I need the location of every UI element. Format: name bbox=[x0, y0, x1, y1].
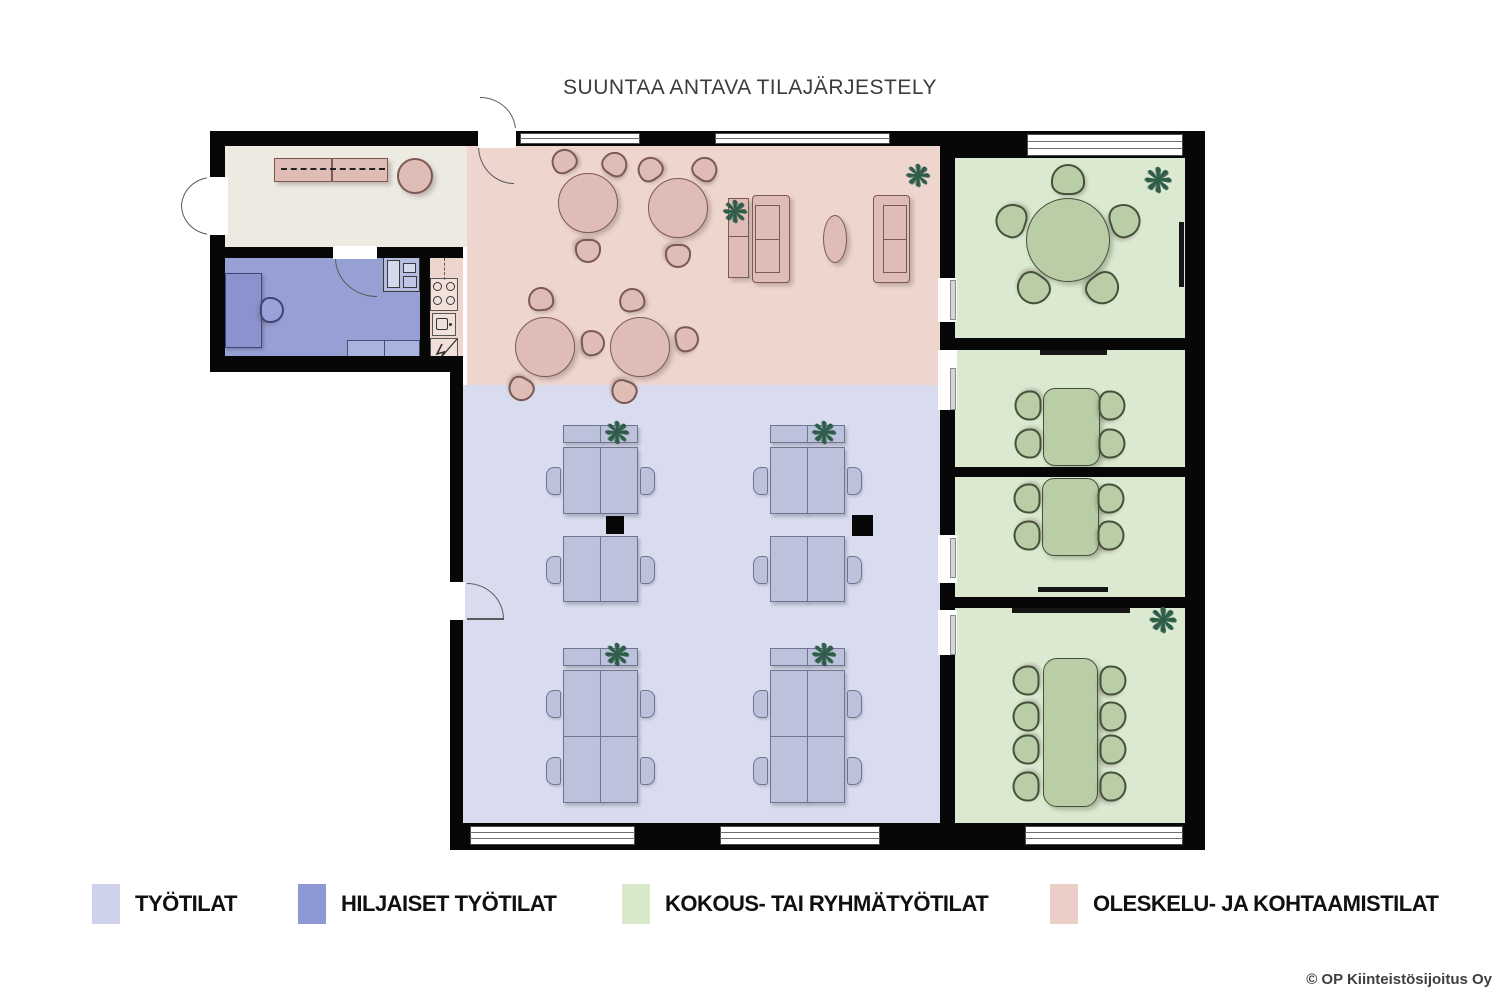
legend-label: OLESKELU- JA KOHTAAMISTILAT bbox=[1093, 891, 1438, 917]
desk bbox=[563, 736, 601, 803]
desk bbox=[563, 447, 601, 514]
meeting-table bbox=[1042, 478, 1099, 556]
office-chair bbox=[640, 690, 655, 718]
plant-icon: ❋ bbox=[1149, 604, 1178, 638]
legend-label: HILJAISET TYÖTILAT bbox=[341, 891, 556, 917]
door-leaf bbox=[950, 280, 956, 320]
desk bbox=[770, 536, 808, 602]
copier-panel bbox=[403, 276, 417, 288]
desk bbox=[770, 447, 808, 514]
wall bbox=[420, 247, 430, 372]
plant-icon: ❋ bbox=[811, 419, 836, 449]
door-arc-outside bbox=[480, 97, 516, 131]
office-chair bbox=[640, 757, 655, 785]
floor-plan-canvas: SUUNTAA ANTAVA TILAJÄRJESTELY bbox=[0, 0, 1500, 1000]
counter-dashed-line bbox=[444, 258, 445, 280]
office-chair bbox=[847, 690, 862, 718]
desk bbox=[563, 670, 601, 737]
shelf bbox=[770, 648, 808, 666]
wall bbox=[955, 338, 1185, 350]
sink-basin bbox=[436, 318, 448, 330]
cafe-table bbox=[610, 317, 670, 377]
meeting-chair bbox=[1013, 735, 1040, 765]
legend-swatch bbox=[92, 884, 120, 924]
stove-burner bbox=[433, 282, 442, 291]
legend-label: TYÖTILAT bbox=[135, 891, 237, 917]
desk bbox=[770, 736, 808, 803]
door-leaf bbox=[950, 368, 956, 410]
column bbox=[852, 515, 873, 536]
cafe-table bbox=[558, 173, 618, 233]
sofa-cushion-line bbox=[728, 236, 749, 237]
window bbox=[470, 826, 635, 845]
desk bbox=[600, 536, 638, 602]
wall bbox=[210, 131, 225, 372]
office-chair bbox=[753, 556, 768, 584]
desk bbox=[807, 670, 845, 737]
column bbox=[606, 516, 624, 534]
legend-swatch bbox=[298, 884, 326, 924]
wall bbox=[940, 146, 955, 823]
door-opening bbox=[333, 246, 377, 259]
office-chair bbox=[753, 757, 768, 785]
bench-dashed-line bbox=[281, 168, 385, 170]
meeting-chair bbox=[1013, 772, 1040, 802]
window bbox=[520, 133, 640, 144]
legend-item-hiljaiset: HILJAISET TYÖTILAT bbox=[298, 884, 556, 924]
office-chair bbox=[640, 467, 655, 495]
desk bbox=[807, 447, 845, 514]
legend-swatch bbox=[1050, 884, 1078, 924]
cafe-table bbox=[515, 317, 575, 377]
meeting-chair bbox=[1051, 164, 1085, 195]
office-chair bbox=[753, 467, 768, 495]
conference-table bbox=[1043, 658, 1098, 807]
door-bar bbox=[1012, 608, 1130, 613]
wall-board bbox=[1179, 222, 1184, 287]
plant-icon: ❋ bbox=[604, 641, 629, 671]
meeting-table-round bbox=[1026, 198, 1110, 282]
window-pane-line bbox=[1027, 141, 1183, 142]
desk bbox=[600, 447, 638, 514]
window-pane-line bbox=[1027, 148, 1183, 149]
meeting-chair bbox=[1014, 521, 1041, 551]
desk bbox=[770, 670, 808, 737]
copyright-text: © OP Kiinteistösijoitus Oy bbox=[1306, 971, 1492, 988]
wall bbox=[1185, 131, 1205, 850]
plant-icon: ❋ bbox=[722, 198, 747, 228]
door-opening bbox=[478, 128, 516, 148]
sofa-cushion-line bbox=[883, 239, 907, 240]
shelf bbox=[770, 425, 808, 443]
meeting-chair bbox=[1015, 391, 1042, 421]
office-chair bbox=[546, 467, 561, 495]
door-opening bbox=[448, 582, 465, 620]
window-pane-line bbox=[1025, 838, 1183, 839]
door-leaf-line bbox=[467, 618, 504, 620]
entrance-opening bbox=[207, 177, 228, 235]
coffee-table bbox=[823, 215, 847, 263]
door-leaf bbox=[950, 615, 956, 655]
stove-burner bbox=[446, 296, 455, 305]
page-title: SUUNTAA ANTAVA TILAJÄRJESTELY bbox=[0, 76, 1500, 100]
window bbox=[1025, 826, 1183, 845]
desk bbox=[807, 536, 845, 602]
plant-icon: ❋ bbox=[1144, 164, 1173, 198]
entry-tub-chair bbox=[397, 158, 433, 194]
legend-item-kokous: KOKOUS- TAI RYHMÄTYÖTILAT bbox=[622, 884, 988, 924]
meeting-chair bbox=[1014, 484, 1041, 514]
entry-bench bbox=[274, 158, 332, 182]
plant-icon: ❋ bbox=[811, 641, 836, 671]
window bbox=[1027, 134, 1183, 156]
stove-burner bbox=[446, 282, 455, 291]
legend-label: KOKOUS- TAI RYHMÄTYÖTILAT bbox=[665, 891, 988, 917]
stove-burner bbox=[433, 296, 442, 305]
window-pane-line bbox=[715, 138, 890, 139]
legend-item-tyotilat: TYÖTILAT bbox=[92, 884, 237, 924]
window-pane-line bbox=[720, 832, 880, 833]
window bbox=[715, 133, 890, 144]
entry-bench bbox=[332, 158, 388, 182]
desk bbox=[600, 670, 638, 737]
plant-icon: ❋ bbox=[604, 419, 629, 449]
office-chair bbox=[640, 556, 655, 584]
office-chair bbox=[847, 467, 862, 495]
shelf bbox=[563, 425, 601, 443]
door-leaf bbox=[950, 538, 956, 578]
window-pane-line bbox=[1025, 832, 1183, 833]
copier-panel bbox=[403, 263, 416, 273]
meeting-chair bbox=[1013, 666, 1040, 696]
office-chair bbox=[753, 690, 768, 718]
legend-item-oleskelu: OLESKELU- JA KOHTAAMISTILAT bbox=[1050, 884, 1438, 924]
shelf bbox=[563, 648, 601, 666]
desk bbox=[563, 536, 601, 602]
office-chair bbox=[546, 757, 561, 785]
door-bar bbox=[1040, 350, 1107, 355]
door-bar bbox=[1038, 587, 1108, 592]
meeting-chair bbox=[1013, 702, 1040, 732]
legend-swatch bbox=[622, 884, 650, 924]
office-chair bbox=[546, 690, 561, 718]
copier-tray bbox=[387, 260, 400, 288]
window bbox=[720, 826, 880, 845]
desk bbox=[807, 736, 845, 803]
meeting-chair bbox=[1015, 429, 1042, 459]
sink-tap bbox=[449, 323, 452, 326]
zone-tyotilat-floor bbox=[463, 385, 940, 823]
office-chair bbox=[847, 556, 862, 584]
wall bbox=[955, 467, 1185, 477]
sofa-cushion-line bbox=[755, 239, 780, 240]
window-pane-line bbox=[470, 838, 635, 839]
quiet-room-desk bbox=[225, 273, 262, 348]
window-pane-line bbox=[470, 832, 635, 833]
desk bbox=[600, 736, 638, 803]
window-pane-line bbox=[520, 138, 640, 139]
window-pane-line bbox=[720, 838, 880, 839]
office-chair bbox=[847, 757, 862, 785]
cafe-table bbox=[648, 178, 708, 238]
plant-icon: ❋ bbox=[905, 162, 930, 192]
meeting-table bbox=[1043, 388, 1100, 466]
office-chair bbox=[546, 556, 561, 584]
